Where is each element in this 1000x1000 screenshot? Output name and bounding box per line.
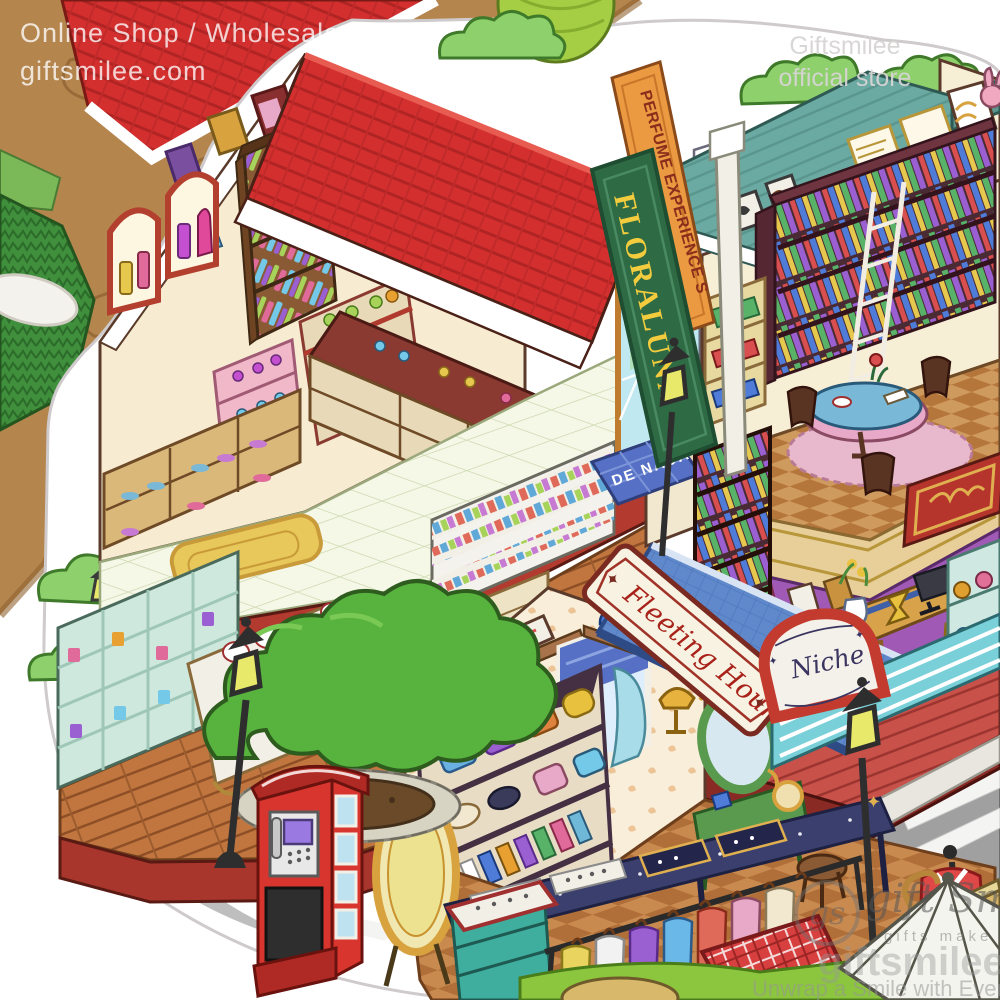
payphone <box>270 812 318 876</box>
arched-niche <box>168 174 216 276</box>
product-photo: DE NADA <box>0 0 1000 1000</box>
arched-niche <box>110 210 158 312</box>
isometric-shop-illustration: DE NADA <box>0 0 1000 1000</box>
telephone-booth <box>252 766 368 996</box>
booth-cabinet <box>266 888 322 960</box>
